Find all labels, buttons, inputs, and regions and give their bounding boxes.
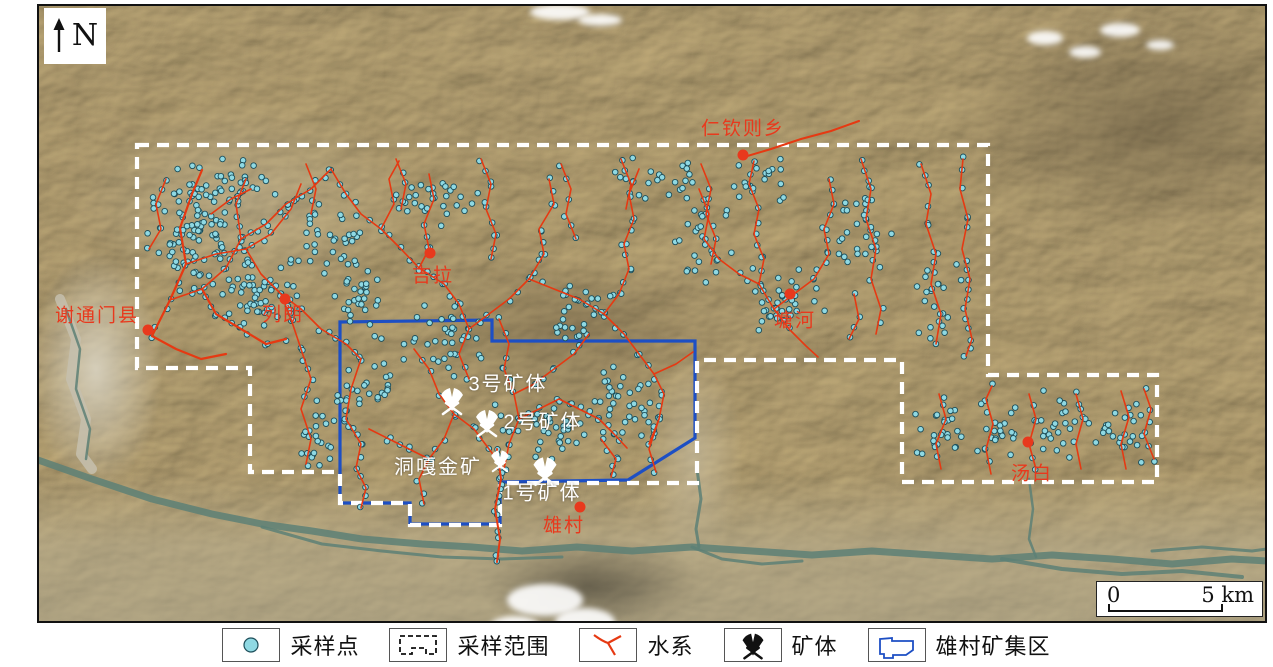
stream-line — [1121, 391, 1129, 469]
map-overlay — [0, 0, 1273, 667]
sampling-point — [595, 296, 601, 302]
sampling-point — [187, 232, 193, 238]
sampling-point — [843, 200, 849, 206]
sampling-point — [452, 304, 458, 310]
sampling-point — [332, 293, 338, 299]
sampling-point — [1106, 428, 1112, 434]
sampling-point — [931, 304, 937, 310]
sampling-point — [1052, 421, 1058, 427]
legend-label: 矿体 — [792, 629, 838, 661]
sampling-point — [627, 390, 633, 396]
sampling-point — [560, 317, 566, 323]
sampling-point — [444, 211, 450, 217]
sampling-point — [632, 417, 638, 423]
sampling-point — [425, 342, 431, 348]
sampling-point — [533, 454, 539, 460]
sampling-point — [299, 451, 305, 457]
sampling-point — [213, 190, 219, 196]
stream-line — [152, 336, 226, 359]
scale-bar: 0 5 km — [1096, 581, 1263, 617]
cloud — [1146, 40, 1174, 50]
legend-swatch — [724, 628, 782, 662]
sampling-point — [723, 213, 729, 219]
sampling-point — [630, 155, 636, 161]
sampling-point — [442, 340, 448, 346]
sampling-point — [375, 298, 381, 304]
sampling-point — [922, 298, 928, 304]
sampling-point — [203, 192, 209, 198]
sampling-point — [317, 463, 323, 469]
sampling-point — [685, 160, 691, 166]
sampling-point — [553, 425, 559, 431]
sampling-point — [285, 282, 291, 288]
stream-icon — [585, 630, 631, 660]
sampling-point — [874, 231, 880, 237]
sampling-point — [241, 282, 247, 288]
sampling-point — [1009, 430, 1015, 436]
sampling-point — [278, 265, 284, 271]
sampling-point — [680, 185, 686, 191]
north-arrow-icon — [52, 18, 66, 54]
sampling-point — [220, 156, 226, 162]
sampling-point — [173, 259, 179, 265]
stream-line — [789, 329, 818, 357]
sampling-point — [1072, 419, 1078, 425]
sampling-point — [844, 230, 850, 236]
sampling-point — [642, 412, 648, 418]
sampling-point — [355, 388, 361, 394]
sampling-point — [219, 188, 225, 194]
sampling-point — [372, 333, 378, 339]
stream-line — [654, 352, 693, 374]
sampling-point — [597, 399, 603, 405]
sampling-point — [413, 192, 419, 198]
sampling-point — [759, 300, 765, 306]
sampling-point — [313, 433, 319, 439]
sampling-point — [354, 213, 360, 219]
sampling-point — [367, 322, 373, 328]
sampling-point — [492, 402, 498, 408]
sampling-point — [365, 268, 371, 274]
sampling-point — [269, 304, 275, 310]
stream-line — [414, 349, 504, 469]
sampling-point — [1127, 439, 1133, 445]
sampling-point — [458, 194, 464, 200]
sampling-point — [357, 230, 363, 236]
sampling-point — [1000, 433, 1006, 439]
sampling-point — [928, 336, 934, 342]
scale-bracket — [1097, 582, 1262, 616]
sampling-point — [756, 327, 762, 333]
sampling-point — [444, 193, 450, 199]
sampling-point — [554, 325, 560, 331]
sampling-point — [924, 289, 930, 295]
sampling-point — [646, 381, 652, 387]
sampling-point — [351, 231, 357, 237]
sampling-point — [607, 293, 613, 299]
sampling-point — [796, 267, 802, 273]
sampling-point — [703, 280, 709, 286]
sampling-point — [362, 307, 368, 313]
sampling-point — [794, 284, 800, 290]
sampling-point — [855, 251, 861, 257]
sampling-point — [794, 308, 800, 314]
sampling-point — [433, 338, 439, 344]
sampling-point — [439, 317, 445, 323]
sampling-point — [201, 219, 207, 225]
sampling-point — [842, 254, 848, 260]
sampling-point — [952, 445, 958, 451]
sampling-point — [252, 295, 258, 301]
sampling-point — [984, 426, 990, 432]
sampling-point — [443, 184, 449, 190]
sampling-point — [229, 175, 235, 181]
sampling-point — [304, 243, 310, 249]
sampling-point — [356, 296, 362, 302]
sampling-point — [449, 340, 455, 346]
sampling-point — [247, 283, 253, 289]
sampling-point — [743, 184, 749, 190]
sampling-point — [731, 184, 737, 190]
sampling-point — [313, 413, 319, 419]
sampling-point — [352, 286, 358, 292]
sampling-point — [506, 429, 512, 435]
legend-label: 水系 — [647, 629, 693, 661]
sampling-point — [636, 192, 642, 198]
sampling-point — [451, 374, 457, 380]
sampling-point — [776, 275, 782, 281]
sampling-point — [320, 413, 326, 419]
sampling-point — [581, 322, 587, 328]
sampling-point — [478, 355, 484, 361]
sampling-point — [1055, 430, 1061, 436]
sampling-point — [546, 430, 552, 436]
legend-item-stream: 水系 — [579, 628, 693, 662]
sampling-point — [684, 195, 690, 201]
sampling-point — [591, 312, 597, 318]
sampling-point — [918, 426, 924, 432]
sampling-point — [1054, 448, 1060, 454]
sampling-point — [845, 259, 851, 265]
sampling-point — [639, 405, 645, 411]
sampling-point — [344, 279, 350, 285]
sampling-point — [184, 223, 190, 229]
sampling-point — [954, 262, 960, 268]
sampling-point — [162, 208, 168, 214]
sampling-point — [1105, 422, 1111, 428]
sampling-point — [381, 361, 387, 367]
sampling-point — [177, 210, 183, 216]
sampling-point — [366, 391, 372, 397]
sampling-point — [566, 423, 572, 429]
river-channel — [1152, 547, 1267, 551]
place-marker — [1023, 437, 1034, 448]
sampling-point — [418, 182, 424, 188]
stream-line — [369, 429, 429, 459]
sampling-point — [222, 178, 228, 184]
sampling-point — [583, 289, 589, 295]
sampling-point — [222, 210, 228, 216]
sampling-point — [220, 292, 226, 298]
sampling-point — [618, 383, 624, 389]
sampling-point — [345, 261, 351, 267]
place-marker — [143, 325, 154, 336]
sampling-point — [401, 357, 407, 363]
sampling-point — [176, 199, 182, 205]
sampling-point — [237, 303, 243, 309]
sampling-point — [836, 251, 842, 257]
sampling-point — [275, 314, 281, 320]
sampling-point — [263, 299, 269, 305]
sampling-point — [566, 304, 572, 310]
sampling-point — [313, 423, 319, 429]
sampling-point — [217, 222, 223, 228]
sampling-point — [786, 307, 792, 313]
sampling-point — [330, 249, 336, 255]
sampling-point — [576, 333, 582, 339]
sampling-point — [647, 400, 653, 406]
sampling-point — [557, 440, 563, 446]
sampling-point — [959, 434, 965, 440]
sampling-point — [788, 313, 794, 319]
sampling-point — [359, 302, 365, 308]
sampling-point — [176, 240, 182, 246]
sampling-point — [196, 194, 202, 200]
sampling-point — [229, 287, 235, 293]
legend-item-sample-point: 采样点 — [222, 628, 359, 662]
sampling-point — [426, 186, 432, 192]
sampling-point — [551, 406, 557, 412]
place-marker — [738, 150, 749, 161]
sampling-point — [449, 331, 455, 337]
river-channel — [1029, 479, 1036, 557]
sampling-point — [789, 279, 795, 285]
sampling-point — [574, 440, 580, 446]
sampling-point — [606, 393, 612, 399]
sampling-point — [646, 419, 652, 425]
sampling-point — [474, 336, 480, 342]
sampling-point — [636, 386, 642, 392]
sampling-point — [914, 284, 920, 290]
sampling-point — [768, 314, 774, 320]
place-marker — [575, 502, 586, 513]
sampling-point — [177, 288, 183, 294]
sampling-point — [931, 438, 937, 444]
sampling-point — [245, 308, 251, 314]
stream-line — [481, 159, 496, 259]
sampling-point — [754, 166, 760, 172]
sampling-point — [196, 228, 202, 234]
sampling-point — [414, 314, 420, 320]
sampling-point — [203, 183, 209, 189]
sampling-point — [312, 249, 318, 255]
sampling-point — [150, 195, 156, 201]
sampling-point — [349, 238, 355, 244]
sampling-point — [406, 194, 412, 200]
sampling-point — [1110, 434, 1116, 440]
sampling-point — [357, 401, 363, 407]
sampling-point — [600, 429, 606, 435]
sampling-point — [251, 302, 257, 308]
north-letter: N — [72, 21, 98, 51]
sampling-point — [442, 326, 448, 332]
sampling-point — [759, 319, 765, 325]
sampling-point — [563, 335, 569, 341]
cloud — [1100, 23, 1140, 37]
sampling-point — [592, 399, 598, 405]
sampling-point — [219, 245, 225, 251]
legend-swatch — [389, 628, 447, 662]
sampling-point — [272, 192, 278, 198]
sampling-point — [375, 277, 381, 283]
sampling-point — [171, 191, 177, 197]
sampling-point — [700, 214, 706, 220]
sampling-point — [558, 434, 564, 440]
sampling-point — [259, 174, 265, 180]
sampling-point — [235, 276, 241, 282]
sampling-point — [346, 367, 352, 373]
sampling-point — [412, 336, 418, 342]
sampling-point — [692, 253, 698, 259]
sampling-point — [672, 179, 678, 185]
sampling-point — [405, 208, 411, 214]
sampling-point — [1011, 436, 1017, 442]
sampling-point — [606, 413, 612, 419]
sampling-point — [854, 201, 860, 207]
sampling-point — [312, 242, 318, 248]
figure: 谢通门县列朗吉拉仁钦则乡塘河汤白雄村3号矿体2号矿体洞嘎金矿1号矿体 N 0 5… — [0, 0, 1273, 667]
sampling-point — [863, 234, 869, 240]
sampling-point — [581, 432, 587, 438]
sampling-point — [889, 231, 895, 237]
sampling-point — [177, 189, 183, 195]
place-marker — [280, 294, 291, 305]
sampling-point — [229, 186, 235, 192]
sampling-point — [323, 421, 329, 427]
sampling-point — [409, 185, 415, 191]
sampling-point — [362, 383, 368, 389]
sampling-point — [1012, 405, 1018, 411]
sampling-point — [934, 412, 940, 418]
sampling-point — [685, 221, 691, 227]
sampling-point — [869, 244, 875, 250]
sampling-point — [187, 182, 193, 188]
sampling-point — [570, 325, 576, 331]
sampling-point — [436, 359, 442, 365]
sampling-point — [601, 370, 607, 376]
legend-item-ore-body: 矿体 — [724, 628, 838, 662]
sampling-point — [643, 196, 649, 202]
sampling-point — [327, 232, 333, 238]
sampling-point — [975, 448, 981, 454]
sampling-point — [412, 200, 418, 206]
sampling-point — [218, 173, 224, 179]
sampling-point — [762, 177, 768, 183]
river-channel — [38, 460, 1267, 564]
sampling-point — [314, 398, 320, 404]
legend-label: 采样点 — [290, 629, 359, 661]
sampling-point — [462, 208, 468, 214]
legend: 采样点采样范围水系矿体雄村矿集区 — [0, 623, 1273, 667]
sampling-point — [245, 275, 251, 281]
sampling-point — [945, 435, 951, 441]
sampling-point — [1038, 418, 1044, 424]
sampling-point — [324, 261, 330, 267]
sampling-point — [536, 447, 542, 453]
sampling-point — [1086, 421, 1092, 427]
cloud — [1027, 31, 1063, 45]
sampling-point — [538, 439, 544, 445]
sampling-point — [448, 351, 454, 357]
sampling-point — [534, 422, 540, 428]
sampling-point — [781, 195, 787, 201]
sampling-point — [607, 385, 613, 391]
sampling-point — [941, 285, 947, 291]
sampling-point — [294, 293, 300, 299]
sampling-point — [311, 450, 317, 456]
sampling-point — [1067, 426, 1073, 432]
legend-swatch — [868, 628, 926, 662]
sampling-point — [1063, 409, 1069, 415]
sampling-point — [1100, 430, 1106, 436]
sampling-point — [307, 221, 313, 227]
sampling-point — [145, 231, 151, 237]
sampling-point — [696, 259, 702, 265]
sampling-point — [615, 394, 621, 400]
sampling-point — [251, 163, 257, 169]
sampling-point — [446, 365, 452, 371]
sampling-point — [1067, 455, 1073, 461]
sampling-point — [607, 406, 613, 412]
sampling-point — [375, 395, 381, 401]
sampling-point — [620, 430, 626, 436]
sampling-point — [736, 163, 742, 169]
sampling-point — [156, 250, 162, 256]
sampling-point — [344, 383, 350, 389]
place-marker — [425, 248, 436, 259]
sampling-point — [268, 287, 274, 293]
sampling-point — [454, 203, 460, 209]
legend-swatch — [222, 628, 280, 662]
sampling-point — [729, 250, 735, 256]
sampling-point — [1060, 441, 1066, 447]
sampling-point — [753, 289, 759, 295]
sampling-point — [877, 264, 883, 270]
sampling-point — [348, 312, 354, 318]
sampling-point — [312, 212, 318, 218]
sampling-point — [327, 456, 333, 462]
sampling-point — [498, 413, 504, 419]
sampling-point — [992, 437, 998, 443]
sampling-point — [561, 309, 567, 315]
sampling-point — [383, 374, 389, 380]
sampling-point — [170, 249, 176, 255]
sampling-point — [648, 169, 654, 175]
sampling-point — [631, 401, 637, 407]
sampling-point — [393, 192, 399, 198]
sampling-point — [328, 445, 334, 451]
sampling-point — [291, 284, 297, 290]
sampling-point — [778, 181, 784, 187]
sampling-point — [639, 433, 645, 439]
sampling-point — [627, 414, 633, 420]
sampling-point — [1008, 452, 1014, 458]
sampling-point — [692, 268, 698, 274]
sampling-point — [687, 172, 693, 178]
sampling-point — [1041, 433, 1047, 439]
sampling-point — [692, 208, 698, 214]
sampling-point — [822, 308, 828, 314]
